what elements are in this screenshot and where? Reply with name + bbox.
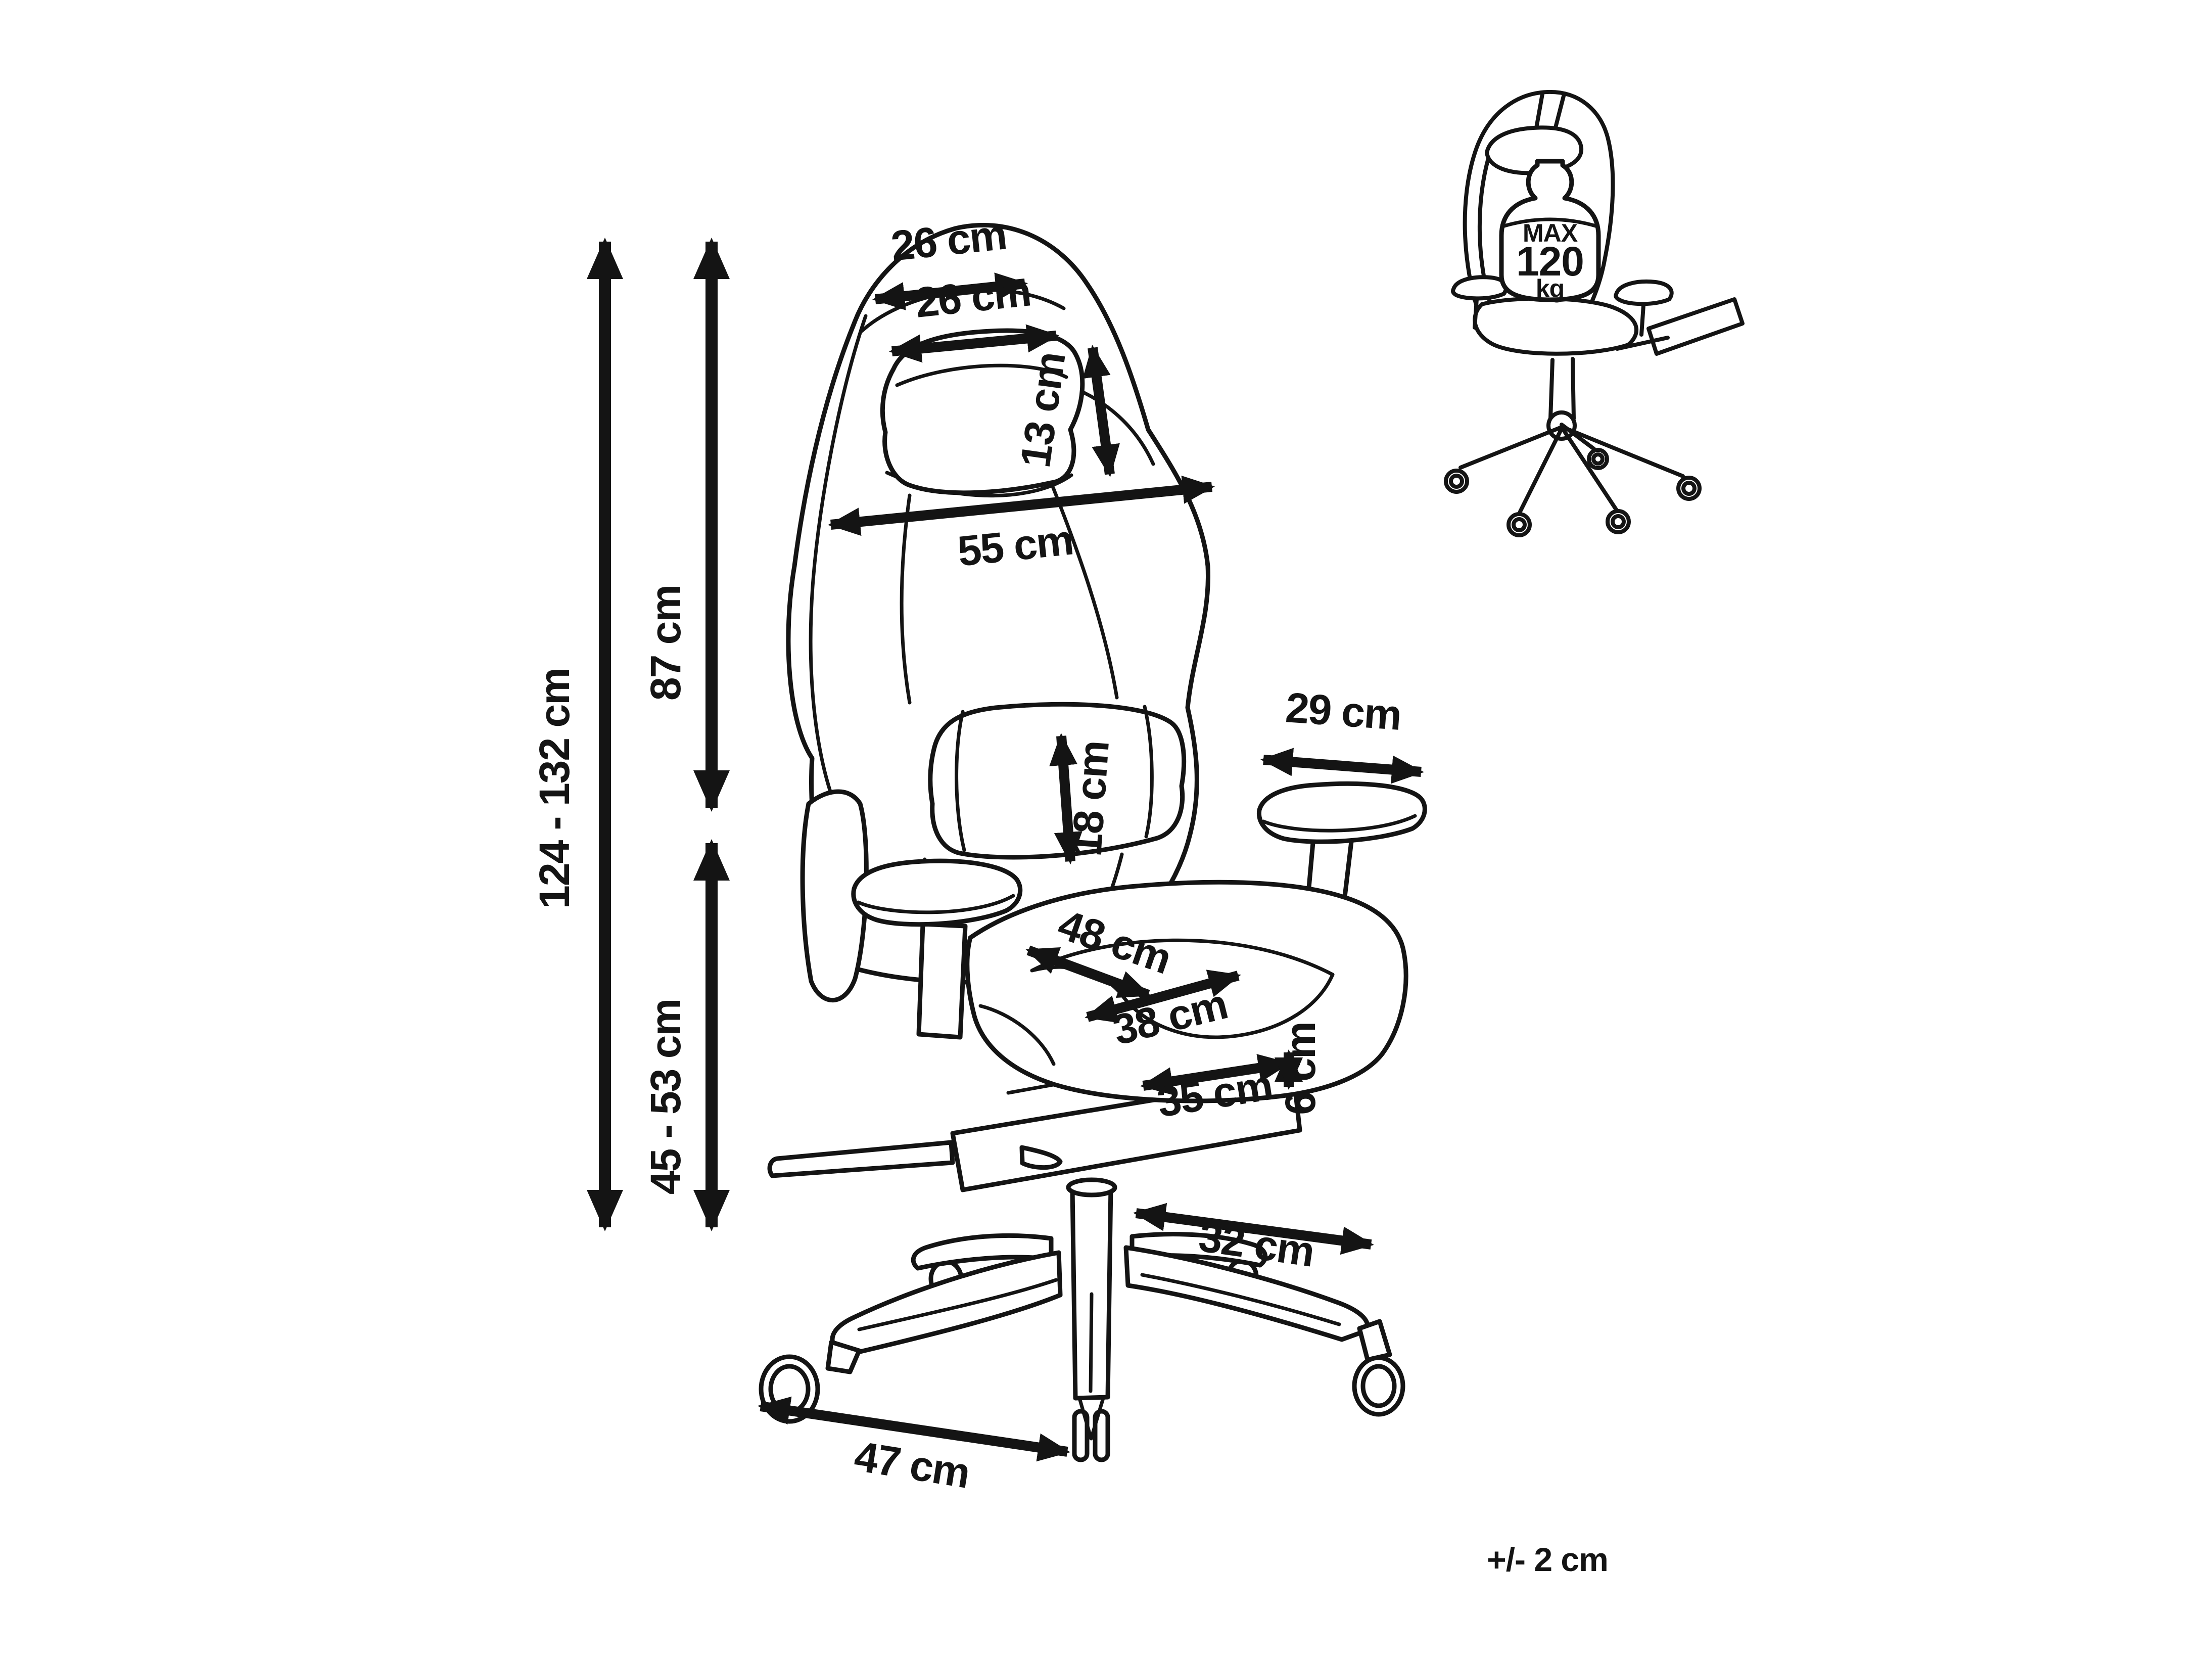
mini-armrest-right — [1616, 282, 1671, 304]
lumbar-pillow — [930, 704, 1184, 857]
mini-base — [1446, 359, 1700, 535]
dim-label-footrest-thickness: 6 cm — [1277, 1022, 1324, 1115]
mini-armrest-right-post — [1641, 305, 1643, 335]
mini-armrest-left — [1453, 277, 1506, 298]
gas-lift-seam — [1091, 1294, 1092, 1391]
dimension-backrest-height: 87 cm — [642, 242, 712, 808]
caster-front-icon — [1074, 1398, 1108, 1460]
armrest-right-pad — [1259, 784, 1425, 842]
mini-footrest — [1649, 299, 1743, 354]
mini-seat — [1475, 298, 1636, 353]
dim-label-base-span: 47 cm — [851, 1432, 972, 1497]
chair-dimension-diagram: MAX 120 kg 124 - 132 cm 87 cm 45 - 53 cm… — [0, 0, 2212, 1659]
dimension-footrest-thickness: 6 cm — [1277, 1022, 1324, 1115]
tolerance-note: +/- 2 cm — [1487, 1541, 1608, 1578]
dim-arrow-armrest-length — [1263, 760, 1421, 772]
mini-gas-lift — [1550, 359, 1574, 419]
dimension-base-span: 47 cm — [761, 1406, 1067, 1497]
caster-mount-right — [1359, 1321, 1390, 1360]
dim-label-lumbar-height: 18 cm — [1062, 740, 1118, 858]
max-load-line3: kg — [1536, 274, 1564, 303]
dim-label-total-height: 124 - 132 cm — [531, 668, 578, 909]
caster-right-hub-icon — [1363, 1366, 1394, 1406]
mini-casters — [1446, 450, 1700, 535]
diagram-page: MAX 120 kg 124 - 132 cm 87 cm 45 - 53 cm… — [0, 0, 2212, 1659]
dim-label-armrest-length: 29 cm — [1284, 683, 1402, 739]
dimension-armrest-length: 29 cm — [1263, 683, 1421, 772]
mini-legs — [1461, 425, 1683, 512]
gas-lift — [1068, 1180, 1115, 1398]
dimension-lumbar-height: 18 cm — [1061, 736, 1118, 861]
dimension-total-height: 124 - 132 cm — [531, 242, 605, 1227]
armrest-left-post — [919, 924, 965, 1037]
dimension-seat-height: 45 - 53 cm — [642, 843, 712, 1227]
armrest-left-pad — [854, 861, 1020, 925]
mini-armrest-left-post — [1475, 299, 1477, 328]
dim-label-backrest-height: 87 cm — [642, 585, 689, 701]
mini-chair-illustration: MAX 120 kg — [1446, 92, 1743, 535]
footrest-rod — [770, 1142, 953, 1176]
dim-label-seat-height: 45 - 53 cm — [642, 999, 689, 1194]
gas-lift-collar — [1068, 1180, 1115, 1195]
